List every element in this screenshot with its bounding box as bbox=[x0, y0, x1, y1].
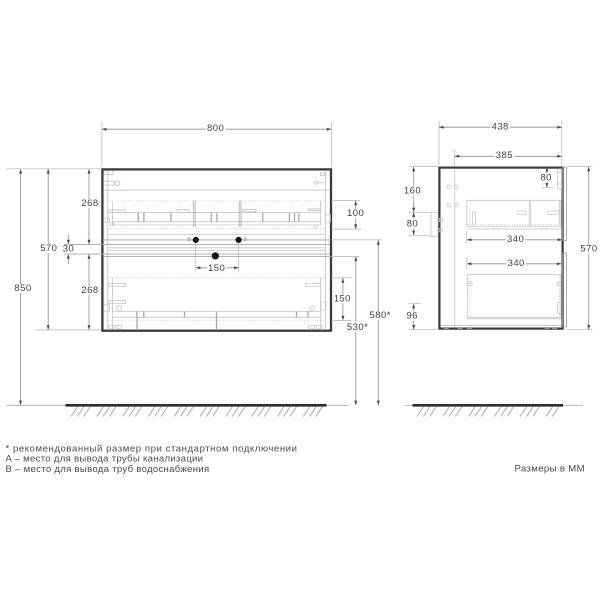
svg-text:530*: 530* bbox=[347, 322, 368, 333]
svg-text:B – место для вывода труб водо: B – место для вывода труб водоснабжения bbox=[6, 464, 210, 475]
svg-text:800: 800 bbox=[207, 123, 224, 134]
svg-text:268: 268 bbox=[81, 285, 98, 296]
svg-text:850: 850 bbox=[14, 283, 31, 294]
svg-text:580*: 580* bbox=[370, 310, 391, 321]
svg-text:438: 438 bbox=[492, 122, 509, 133]
svg-text:570: 570 bbox=[40, 243, 57, 254]
svg-text:80: 80 bbox=[540, 172, 551, 183]
svg-text:150: 150 bbox=[334, 293, 351, 304]
svg-text:100: 100 bbox=[347, 208, 364, 219]
svg-text:340: 340 bbox=[508, 258, 525, 269]
svg-text:160: 160 bbox=[404, 185, 421, 196]
svg-text:B: B bbox=[187, 237, 191, 243]
svg-text:Размеры в ММ: Размеры в ММ bbox=[515, 463, 585, 474]
svg-text:385: 385 bbox=[496, 150, 513, 161]
svg-text:30: 30 bbox=[63, 243, 74, 254]
svg-text:340: 340 bbox=[507, 234, 524, 245]
svg-text:80: 80 bbox=[407, 218, 418, 229]
svg-text:570: 570 bbox=[580, 243, 597, 254]
svg-text:268: 268 bbox=[81, 198, 98, 209]
svg-text:96: 96 bbox=[406, 311, 417, 322]
svg-text:B: B bbox=[243, 237, 247, 243]
svg-text:A – место для вывода трубы кан: A – место для вывода трубы канализации bbox=[6, 453, 204, 464]
svg-text:150: 150 bbox=[208, 263, 225, 274]
